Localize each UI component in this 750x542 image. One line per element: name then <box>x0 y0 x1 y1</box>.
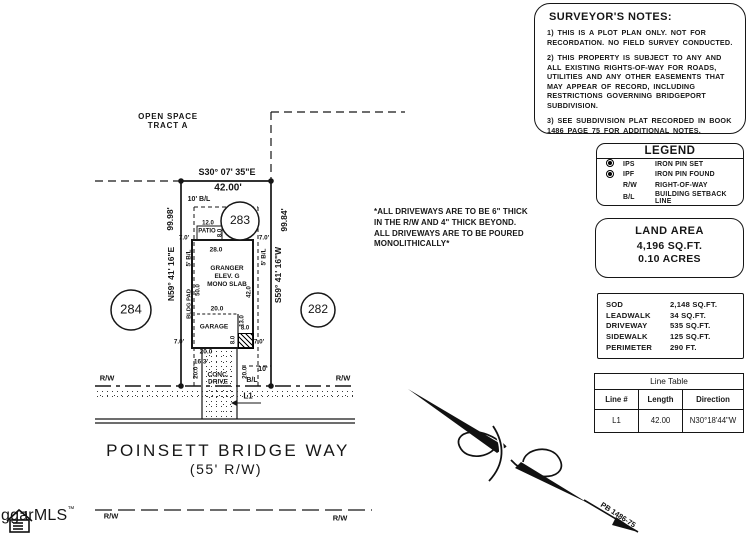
setback-bl-bottom: B/L <box>246 377 257 385</box>
house-length-left: 50.0 <box>196 284 203 296</box>
iron-pin-set-icon <box>606 159 614 167</box>
setback-10-top: 10' B/L <box>188 196 211 204</box>
house-icon <box>5 506 35 536</box>
bldg-pad-label: BLDG PAD <box>187 289 194 319</box>
bearing-left: N59° 41' 16"E <box>167 247 177 301</box>
area-row-sod: SOD 2,148 SQ.FT. <box>606 300 743 311</box>
legend-abbr: R/W <box>623 182 655 189</box>
legend-label: IRON PIN FOUND <box>655 171 743 178</box>
area-value: 2,148 SQ.FT. <box>670 300 743 311</box>
patio-width: 12.0 <box>202 221 214 228</box>
area-label: SOD <box>606 300 670 311</box>
surveyor-notes-panel: SURVEYOR'S NOTES: 1) THIS IS A PLOT PLAN… <box>534 3 746 134</box>
patio-depth: 8.0 <box>218 229 225 237</box>
land-area-acres: 0.10 ACRES <box>596 253 743 266</box>
stoop-depth: 8.0 <box>231 336 238 344</box>
mls-logo: ggarMLS™ <box>5 506 75 525</box>
areas-panel: SOD 2,148 SQ.FT. LEADWALK 34 SQ.FT. DRIV… <box>597 293 744 359</box>
surveyor-notes-title: SURVEYOR'S NOTES: <box>549 11 735 23</box>
garage-width: 20.0 <box>211 305 224 312</box>
street-rw-width: (55' R/W) <box>190 461 262 477</box>
lot-283-label: 283 <box>230 214 250 228</box>
area-label: DRIVEWAY <box>606 321 670 332</box>
legend-item-ipf: IPF IRON PIN FOUND <box>597 170 743 181</box>
area-value: 34 SQ.FT. <box>670 311 743 322</box>
dim-7-top-left: 7.0' <box>179 234 189 241</box>
garage-label: GARAGE <box>200 323 229 330</box>
area-label: LEADWALK <box>606 311 670 322</box>
area-label: PERIMETER <box>606 343 670 354</box>
area-row-leadwalk: LEADWALK 34 SQ.FT. <box>606 311 743 322</box>
drive-label: CONC. DRIVE <box>208 372 229 387</box>
line-table-header-direction: Direction <box>683 390 743 410</box>
area-row-sidewalk: SIDEWALK 125 SQ.FT. <box>606 332 743 343</box>
area-row-driveway: DRIVEWAY 535 SQ.FT. <box>606 321 743 332</box>
surveyor-note-1: 1) THIS IS A PLOT PLAN ONLY. NOT FOR REC… <box>547 28 735 47</box>
surveyor-note-2: 2) THIS PROPERTY IS SUBJECT TO ANY AND A… <box>547 53 735 110</box>
line-direction: N30°18'44"W <box>683 410 743 432</box>
dim-7-bottom-right: 7.0' <box>254 338 264 345</box>
drive-depth-left: 20.0' <box>192 365 199 379</box>
legend-label: RIGHT-OF-WAY <box>655 182 743 189</box>
legend-item-rw: R/W RIGHT-OF-WAY <box>597 180 743 191</box>
rw-label-left: R/W <box>100 375 115 384</box>
area-label: SIDEWALK <box>606 332 670 343</box>
setback-10-bottom: 10' <box>258 366 267 374</box>
area-row-perimeter: PERIMETER 290 FT. <box>606 343 743 354</box>
area-value: 535 SQ.FT. <box>670 321 743 332</box>
lot-282-label: 282 <box>308 303 328 317</box>
north-arrow: PB 1486-75 <box>400 384 650 542</box>
area-value: 290 FT. <box>670 343 743 354</box>
l1-label: L1 <box>243 391 252 400</box>
land-area-panel: LAND AREA 4,196 SQ.FT. 0.10 ACRES <box>595 218 744 278</box>
land-area-title: LAND AREA <box>596 225 743 237</box>
dim-7-top-right: 7.0' <box>259 234 269 241</box>
legend-panel: LEGEND IPS IRON PIN SET IPF IRON PIN FOU… <box>596 143 744 206</box>
dim-7-bottom-left: 7.0' <box>174 338 184 345</box>
stoop-width: 8.0 <box>241 326 249 333</box>
land-area-sqft: 4,196 SQ.FT. <box>596 240 743 253</box>
setback-5-right: 5' B/L <box>260 249 267 266</box>
driveway-note: *ALL DRIVEWAYS ARE TO BE 6" THICK IN THE… <box>374 207 582 250</box>
rw-label-bottom-right: R/W <box>333 515 348 524</box>
legend-abbr: IPS <box>623 161 655 168</box>
surveyor-note-3: 3) SEE SUBDIVISION PLAT RECORDED IN BOOK… <box>547 116 735 135</box>
legend-item-ips: IPS IRON PIN SET <box>597 159 743 170</box>
length-left: 99.98' <box>166 207 176 230</box>
house-width: 28.0 <box>210 246 223 253</box>
plat-canvas: OPEN SPACE TRACT A S30° 07' 35"E 42.00' … <box>0 0 750 542</box>
house-name: GRANGER ELEV. G MONO SLAB <box>207 265 247 289</box>
rw-label-bottom-left: R/W <box>104 513 119 522</box>
length-right: 99.84' <box>280 208 290 231</box>
street-name: POINSETT BRIDGE WAY <box>106 441 350 461</box>
setback-5-left: 5' B/L <box>185 250 192 267</box>
trademark-symbol: ™ <box>67 506 74 513</box>
iron-pin-found-icon <box>606 170 614 178</box>
lot-284-label: 284 <box>120 303 142 318</box>
patio-label: PATIO <box>198 229 215 236</box>
house-length-right: 42.0 <box>247 286 254 298</box>
area-value: 125 SQ.FT. <box>670 332 743 343</box>
legend-title: LEGEND <box>597 144 743 159</box>
stoop-hatch <box>238 333 254 349</box>
legend-item-bl: B/L BUILDING SETBACK LINE <box>597 191 743 202</box>
rw-label-right: R/W <box>336 375 351 384</box>
bearing-top: S30° 07' 35"E <box>198 167 255 177</box>
legend-label: IRON PIN SET <box>655 161 743 168</box>
bearing-right: S59° 41' 16"W <box>274 247 284 303</box>
distance-top: 42.00' <box>214 182 241 194</box>
legend-label: BUILDING SETBACK LINE <box>655 191 743 205</box>
legend-abbr: B/L <box>623 194 655 201</box>
garage-front-width: 20.0 <box>200 348 213 355</box>
open-space-label: OPEN SPACE TRACT A <box>138 112 198 130</box>
legend-abbr: IPF <box>623 171 655 178</box>
